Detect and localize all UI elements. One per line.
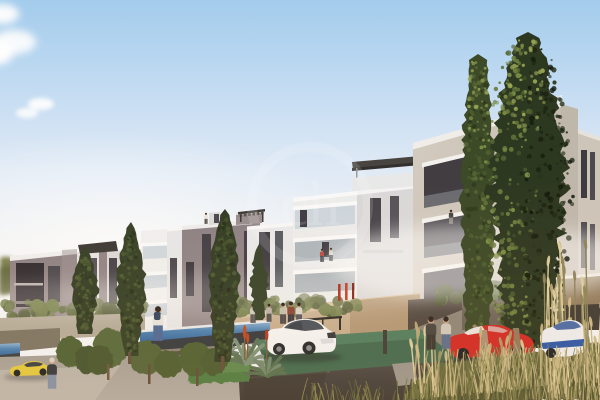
svg-text:ch: ch [280,168,340,239]
